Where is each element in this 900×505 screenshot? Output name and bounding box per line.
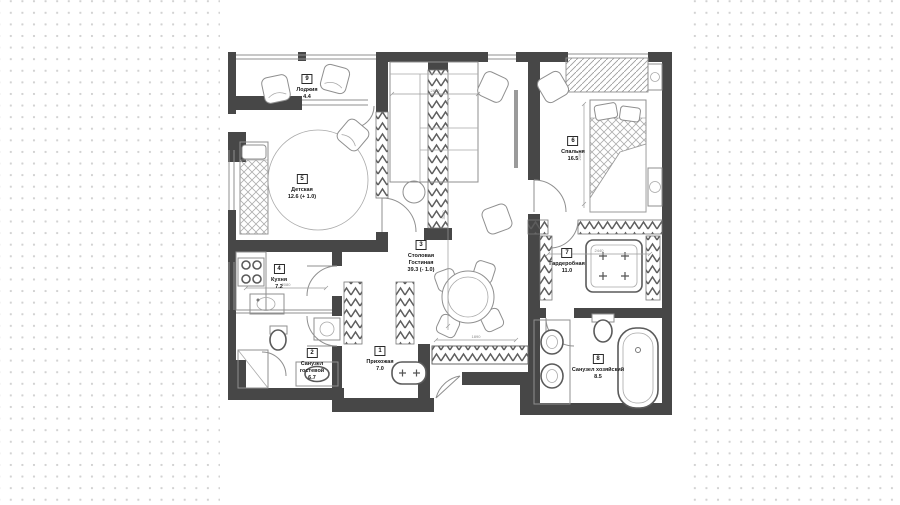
- dimension-label: 3050: [441, 210, 446, 220]
- armchair: [535, 69, 571, 105]
- armchair: [476, 70, 511, 105]
- room-name: Кухня: [271, 277, 287, 284]
- room-name: Лоджия: [296, 87, 317, 94]
- room-area: 11.0: [549, 268, 585, 275]
- room-number-badge: 7: [562, 248, 573, 258]
- nightstand: [648, 168, 662, 206]
- room-area: 16.5: [561, 156, 585, 163]
- room-label-bedroom: 6 Спальня 16.5: [561, 128, 585, 163]
- sink: [541, 364, 563, 388]
- dimension-label: 1890: [472, 334, 482, 339]
- room-name: Прихожая: [366, 359, 393, 366]
- room-area: 4.4: [296, 94, 317, 101]
- room-number-badge: 1: [374, 346, 385, 356]
- armchair: [480, 202, 513, 235]
- room-label-kids-room: 5 Детская 12.6 (+ 1.0): [288, 166, 316, 201]
- room-name: Столовая Гостиная: [408, 253, 435, 267]
- floor-plan-page: 2890 3050 2060 2080 2440 1890 1 Прихожая…: [0, 0, 900, 505]
- kitchen-sink: [250, 294, 284, 314]
- room-number-badge: 3: [416, 240, 427, 250]
- room-label-loggia: 9 Лоджия 4.4: [296, 66, 317, 101]
- room-label-master-bath: 8 Санузел хозяйский 8.5: [572, 346, 624, 381]
- room-number-badge: 9: [301, 74, 312, 84]
- room-number-badge: 6: [567, 136, 578, 146]
- floor-plan-drawing: 2890 3050 2060 2080 2440 1890: [0, 0, 900, 505]
- room-name: Гардеробная: [549, 261, 585, 268]
- room-name: Спальня: [561, 149, 585, 156]
- room-hallway-furniture: [392, 362, 426, 384]
- room-name: Детская: [288, 187, 316, 194]
- room-number-badge: 4: [273, 264, 284, 274]
- kitchen-counter: [236, 252, 266, 310]
- washing-machine: [314, 318, 340, 340]
- room-area: 7.2: [271, 284, 287, 291]
- nightstand: [648, 64, 662, 90]
- sink: [541, 330, 563, 354]
- double-bed: [590, 100, 646, 212]
- dimension-label: 2440: [595, 248, 605, 253]
- toilet: [270, 326, 287, 350]
- room-area: 6.7: [300, 375, 324, 382]
- room-area: 8.5: [572, 374, 624, 381]
- room-area: 39.3 (- 1.0): [408, 267, 435, 274]
- room-guest-bath-furniture: [238, 318, 340, 388]
- bench: [392, 362, 426, 384]
- tv-panel: [514, 90, 518, 168]
- room-area: 12.6 (+ 1.0): [288, 194, 316, 201]
- room-label-living: 3 Столовая Гостиная 39.3 (- 1.0): [408, 232, 435, 274]
- room-name: Санузел гостевой: [300, 361, 324, 375]
- stove: [238, 258, 264, 286]
- armchair: [335, 117, 372, 154]
- coffee-table: [403, 181, 425, 203]
- room-number-badge: 5: [296, 174, 307, 184]
- room-number-badge: 8: [592, 354, 603, 364]
- room-bedroom-furniture: [535, 58, 662, 212]
- room-label-guest-bath: 2 Санузел гостевой 6.7: [300, 340, 324, 382]
- room-label-hallway: 1 Прихожая 7.0: [366, 338, 393, 373]
- room-number-badge: 2: [307, 348, 318, 358]
- dimension-label: 2890: [431, 88, 441, 93]
- toilet: [592, 314, 614, 342]
- room-area: 7.0: [366, 366, 393, 373]
- wardrobe-unit: [566, 58, 648, 92]
- room-label-kitchen: 4 Кухня 7.2: [271, 256, 287, 291]
- room-name: Санузел хозяйский: [572, 367, 624, 374]
- room-label-wardrobe: 7 Гардеробная 11.0: [549, 240, 585, 275]
- dining-set: [433, 259, 505, 339]
